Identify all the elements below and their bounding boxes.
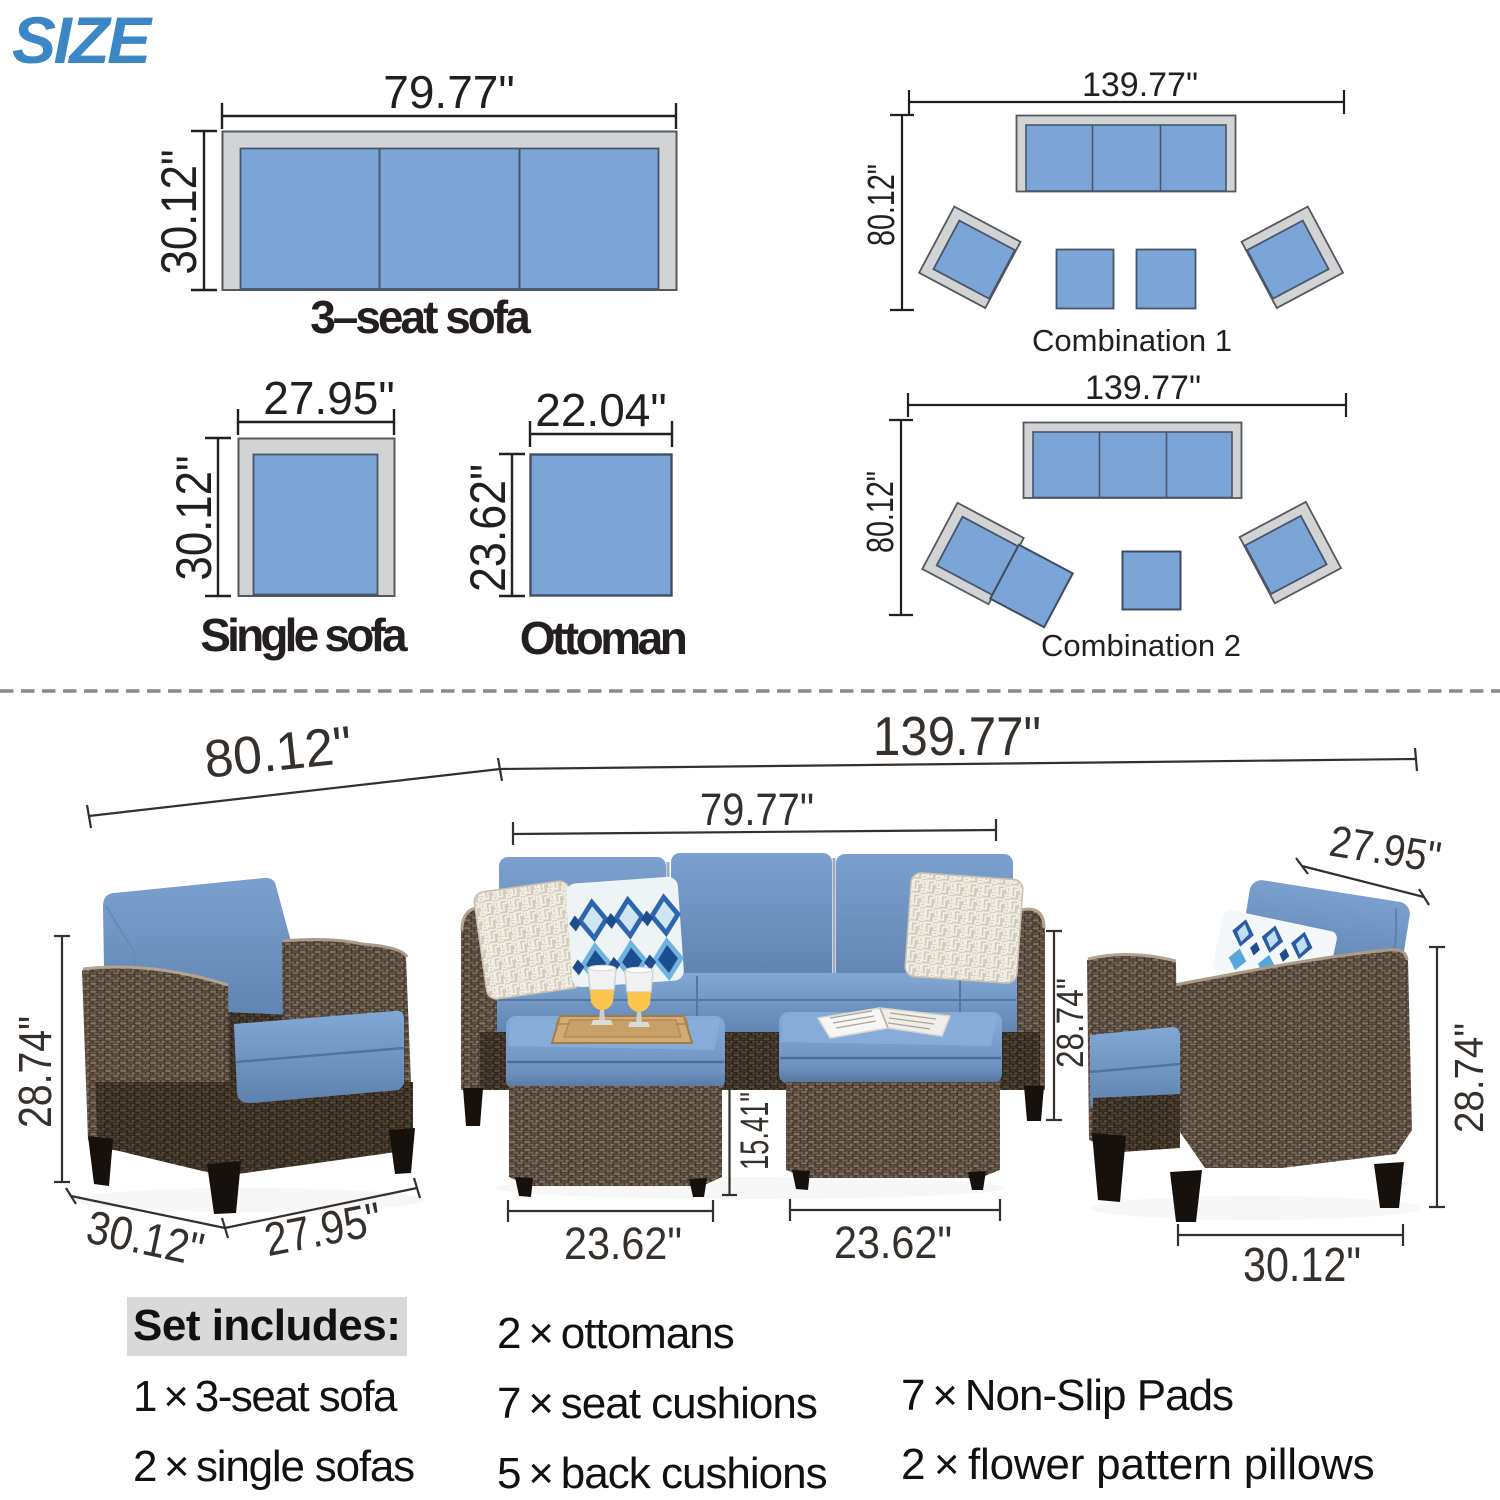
svg-text:2 × flower pattern pillows: 2 × flower pattern pillows xyxy=(901,1440,1374,1489)
svg-text:28.74": 28.74" xyxy=(9,1016,61,1128)
svg-text:79.77": 79.77" xyxy=(383,66,514,118)
svg-text:7 × seat cushions: 7 × seat cushions xyxy=(497,1379,817,1428)
svg-text:7 × Non-Slip Pads: 7 × Non-Slip Pads xyxy=(901,1371,1233,1420)
svg-text:23.62": 23.62" xyxy=(460,464,516,592)
svg-text:5 × back cushions: 5 × back cushions xyxy=(497,1449,827,1498)
svg-text:80.12": 80.12" xyxy=(860,471,902,553)
svg-text:28.74": 28.74" xyxy=(1050,978,1092,1068)
svg-text:30.12": 30.12" xyxy=(1243,1239,1361,1292)
svg-text:22.04": 22.04" xyxy=(535,384,666,436)
svg-text:139.77": 139.77" xyxy=(1082,66,1198,104)
svg-text:2 × single sofas: 2 × single sofas xyxy=(133,1442,414,1491)
svg-text:Single sofa: Single sofa xyxy=(200,609,408,661)
svg-text:23.62": 23.62" xyxy=(564,1218,682,1269)
svg-text:Combination 2: Combination 2 xyxy=(1041,628,1241,663)
svg-text:1 × 3-seat sofa: 1 × 3-seat sofa xyxy=(133,1372,398,1421)
svg-text:2 × ottomans: 2 × ottomans xyxy=(497,1309,734,1358)
svg-text:79.77": 79.77" xyxy=(700,784,814,835)
svg-text:SIZE: SIZE xyxy=(12,3,153,77)
svg-text:3–seat sofa: 3–seat sofa xyxy=(310,291,531,343)
svg-text:27.95": 27.95" xyxy=(1326,817,1444,883)
svg-text:30.12": 30.12" xyxy=(151,150,207,275)
svg-text:139.77": 139.77" xyxy=(873,705,1041,767)
svg-text:27.95": 27.95" xyxy=(263,372,394,424)
svg-text:Ottoman: Ottoman xyxy=(520,612,686,664)
svg-text:Set includes:: Set includes: xyxy=(133,1301,400,1350)
svg-text:Combination 1: Combination 1 xyxy=(1032,323,1232,358)
svg-text:139.77": 139.77" xyxy=(1085,369,1201,407)
svg-text:30.12": 30.12" xyxy=(166,456,222,581)
svg-text:80.12": 80.12" xyxy=(201,716,354,790)
svg-text:28.74": 28.74" xyxy=(1446,1023,1492,1133)
svg-text:15.41": 15.41" xyxy=(733,1092,777,1170)
svg-text:23.62": 23.62" xyxy=(834,1217,952,1268)
svg-text:80.12": 80.12" xyxy=(861,164,903,246)
